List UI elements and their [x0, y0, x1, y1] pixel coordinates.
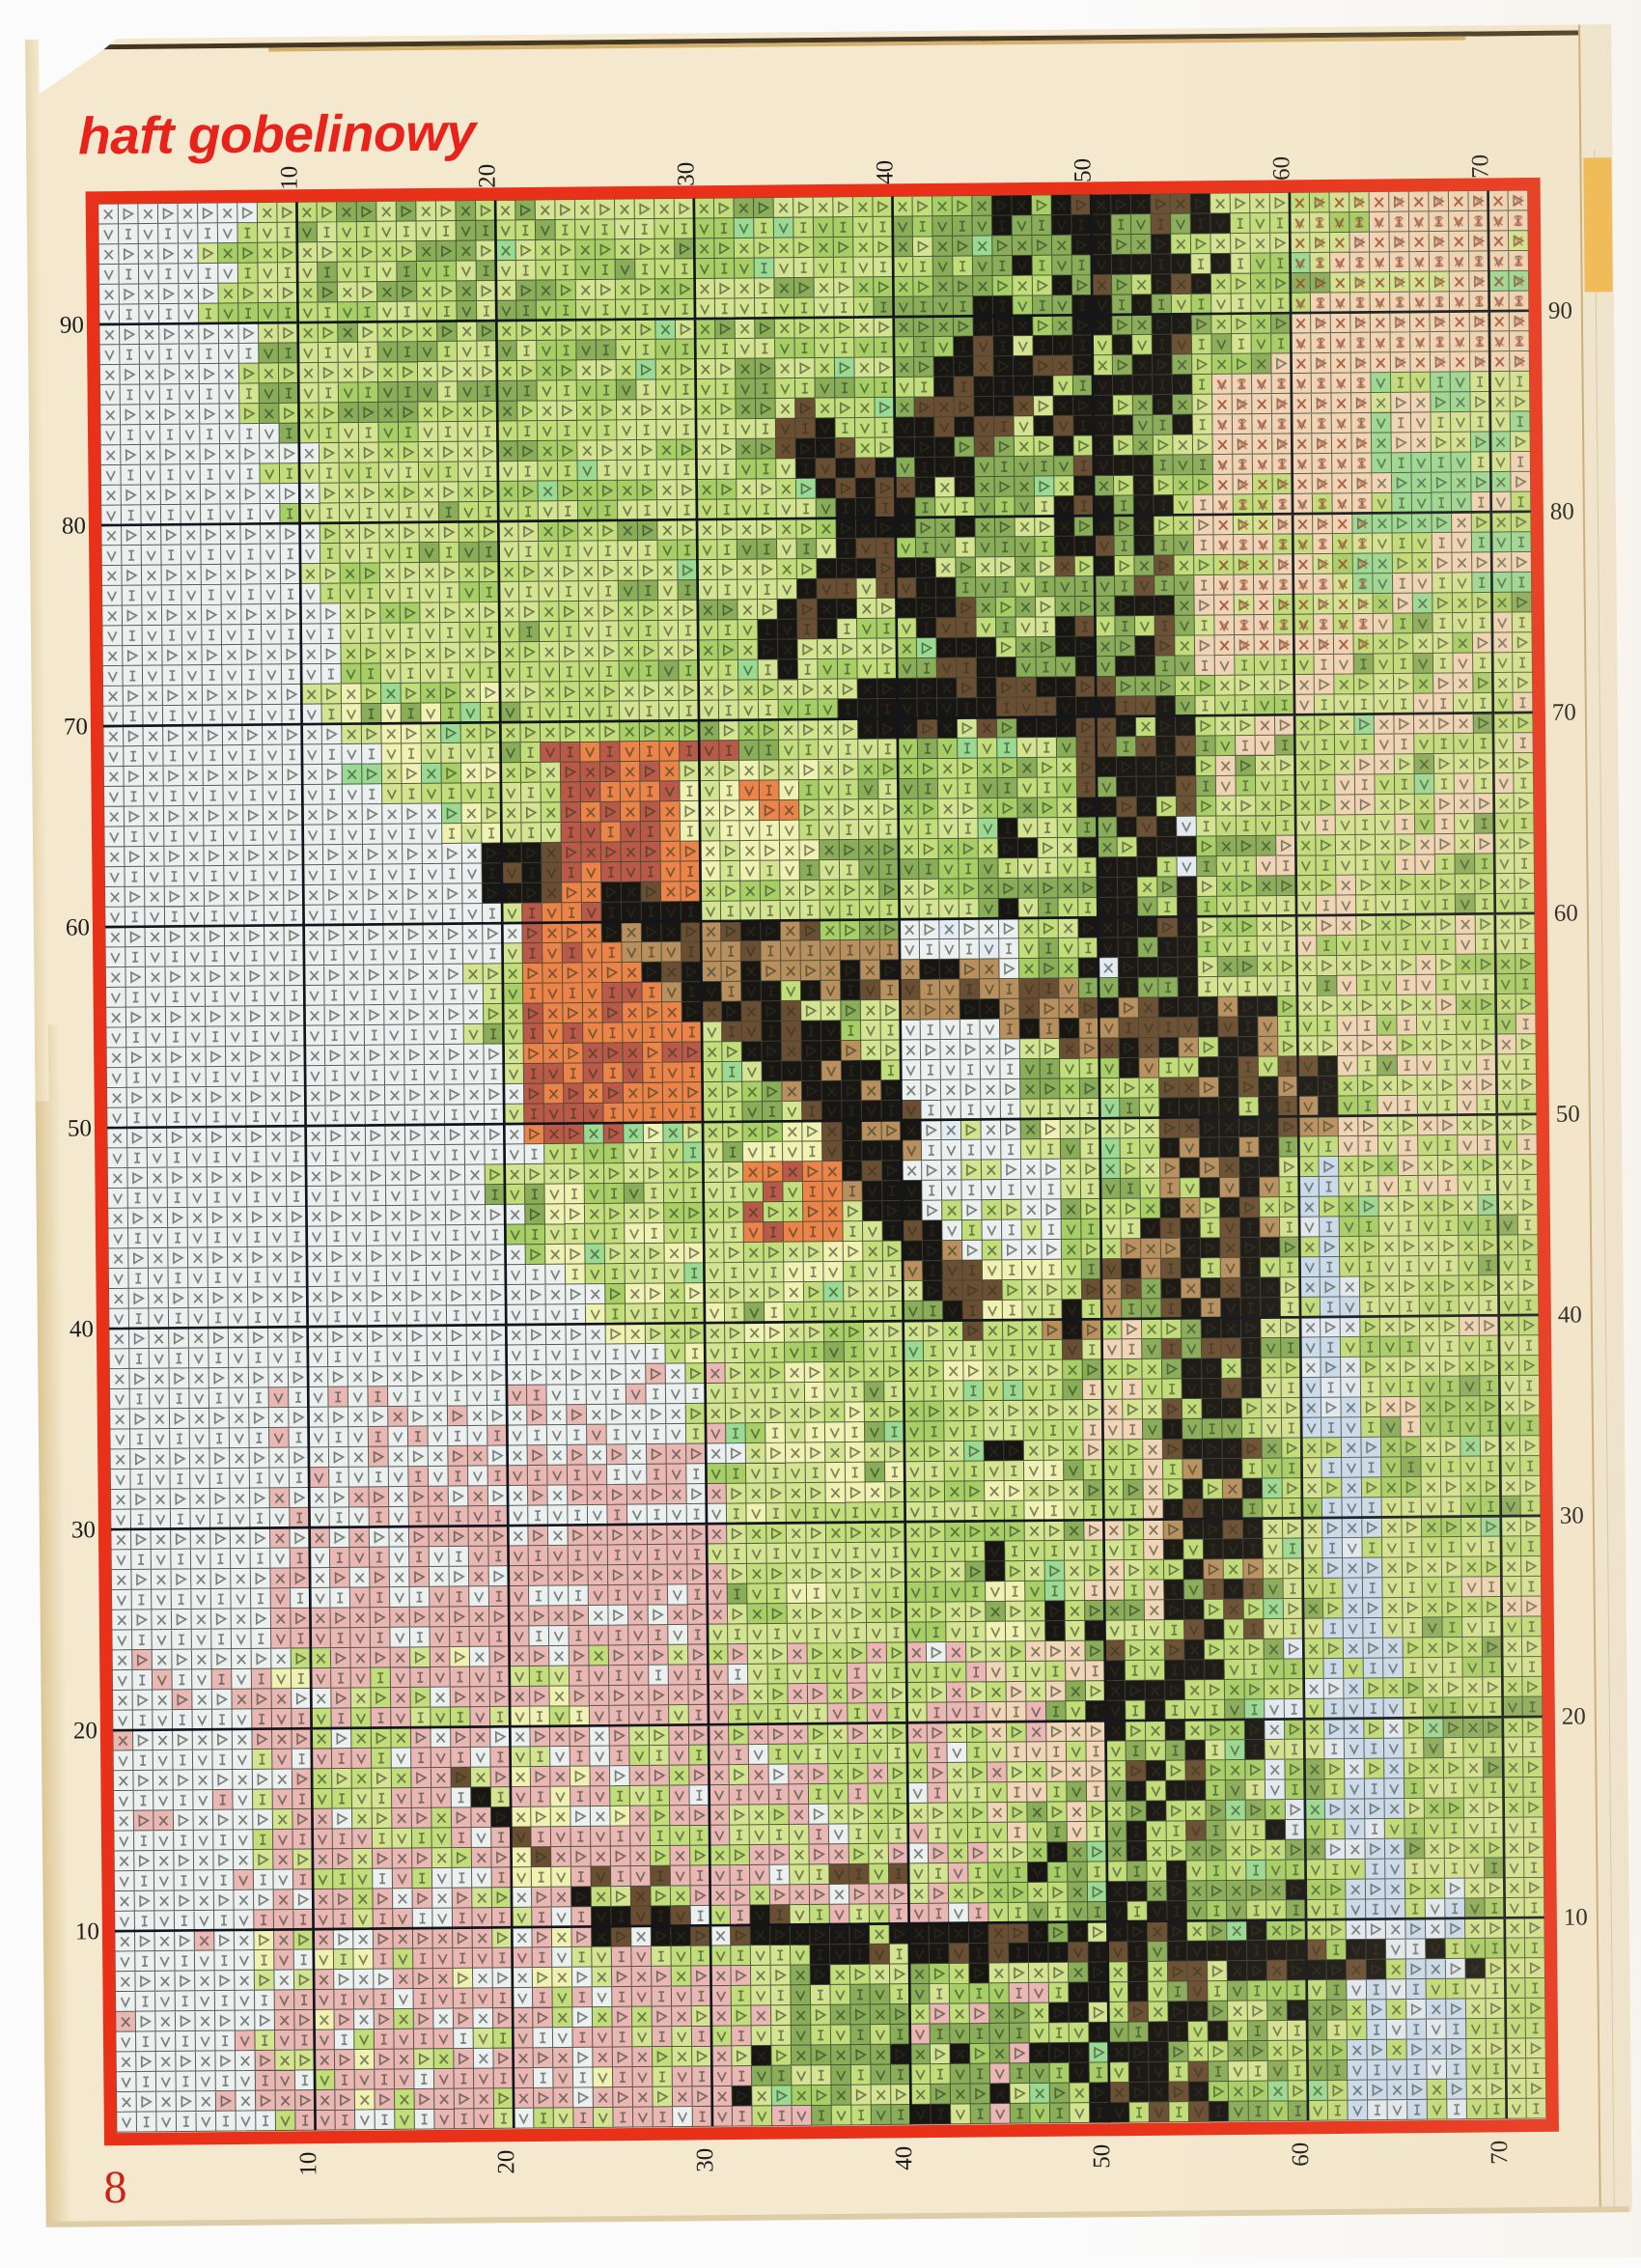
svg-text:10: 10 — [276, 166, 302, 190]
svg-text:50: 50 — [1556, 1102, 1580, 1128]
svg-text:30: 30 — [673, 162, 699, 186]
svg-text:70: 70 — [1552, 700, 1576, 726]
svg-text:60: 60 — [1288, 2142, 1314, 2167]
svg-text:40: 40 — [872, 160, 898, 184]
svg-text:70: 70 — [1467, 154, 1493, 179]
svg-text:10: 10 — [1564, 1904, 1588, 1930]
svg-text:60: 60 — [1554, 901, 1578, 927]
svg-text:30: 30 — [1560, 1503, 1584, 1529]
svg-text:30: 30 — [692, 2148, 718, 2172]
svg-text:10: 10 — [75, 1918, 99, 1945]
svg-text:90: 90 — [1548, 298, 1572, 324]
svg-text:40: 40 — [891, 2146, 917, 2170]
svg-text:50: 50 — [1089, 2144, 1115, 2169]
svg-text:70: 70 — [64, 714, 88, 740]
svg-text:40: 40 — [1558, 1302, 1582, 1329]
svg-text:60: 60 — [66, 914, 90, 940]
svg-text:30: 30 — [71, 1517, 96, 1543]
svg-text:50: 50 — [1070, 158, 1096, 182]
svg-text:20: 20 — [73, 1718, 97, 1744]
svg-text:60: 60 — [1268, 156, 1294, 181]
svg-text:20: 20 — [1562, 1704, 1586, 1730]
svg-text:80: 80 — [62, 513, 86, 539]
svg-text:20: 20 — [474, 164, 500, 188]
svg-text:10: 10 — [295, 2152, 321, 2176]
svg-text:20: 20 — [493, 2150, 519, 2174]
svg-text:50: 50 — [68, 1115, 92, 1141]
svg-text:90: 90 — [60, 312, 84, 338]
svg-text:70: 70 — [1487, 2141, 1513, 2165]
svg-text:40: 40 — [70, 1316, 94, 1342]
svg-text:80: 80 — [1550, 499, 1574, 525]
